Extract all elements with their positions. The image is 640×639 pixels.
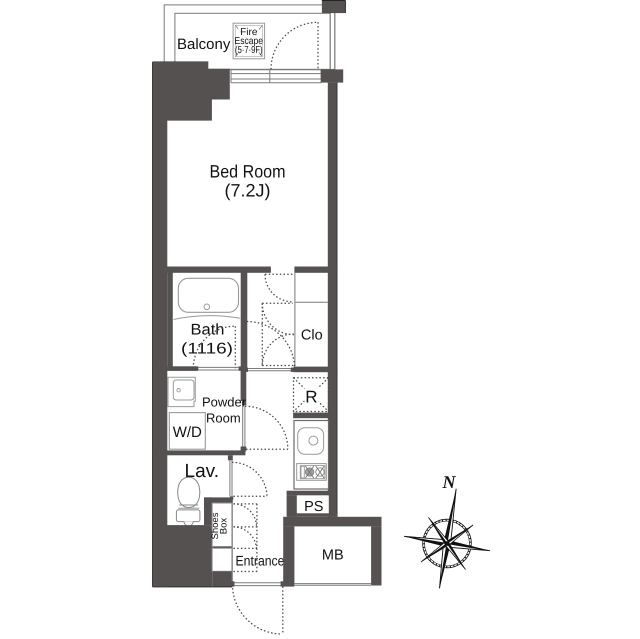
svg-text:MB: MB — [322, 548, 344, 564]
svg-text:(7.2J): (7.2J) — [224, 181, 270, 201]
svg-text:Room: Room — [206, 411, 241, 426]
svg-text:Box: Box — [219, 518, 230, 535]
svg-text:PS: PS — [304, 499, 323, 515]
svg-text:Balcony: Balcony — [177, 36, 231, 53]
svg-text:Bed Room: Bed Room — [210, 162, 286, 182]
svg-text:W/D: W/D — [173, 424, 202, 441]
svg-text:(1116): (1116) — [181, 341, 233, 358]
svg-text:Entrance: Entrance — [236, 553, 285, 569]
svg-text:(5·7·9F): (5·7·9F) — [235, 45, 263, 56]
svg-text:R: R — [305, 387, 317, 406]
svg-text:Clo: Clo — [301, 328, 323, 344]
svg-text:Powder: Powder — [202, 395, 247, 410]
svg-text:N: N — [442, 472, 457, 492]
